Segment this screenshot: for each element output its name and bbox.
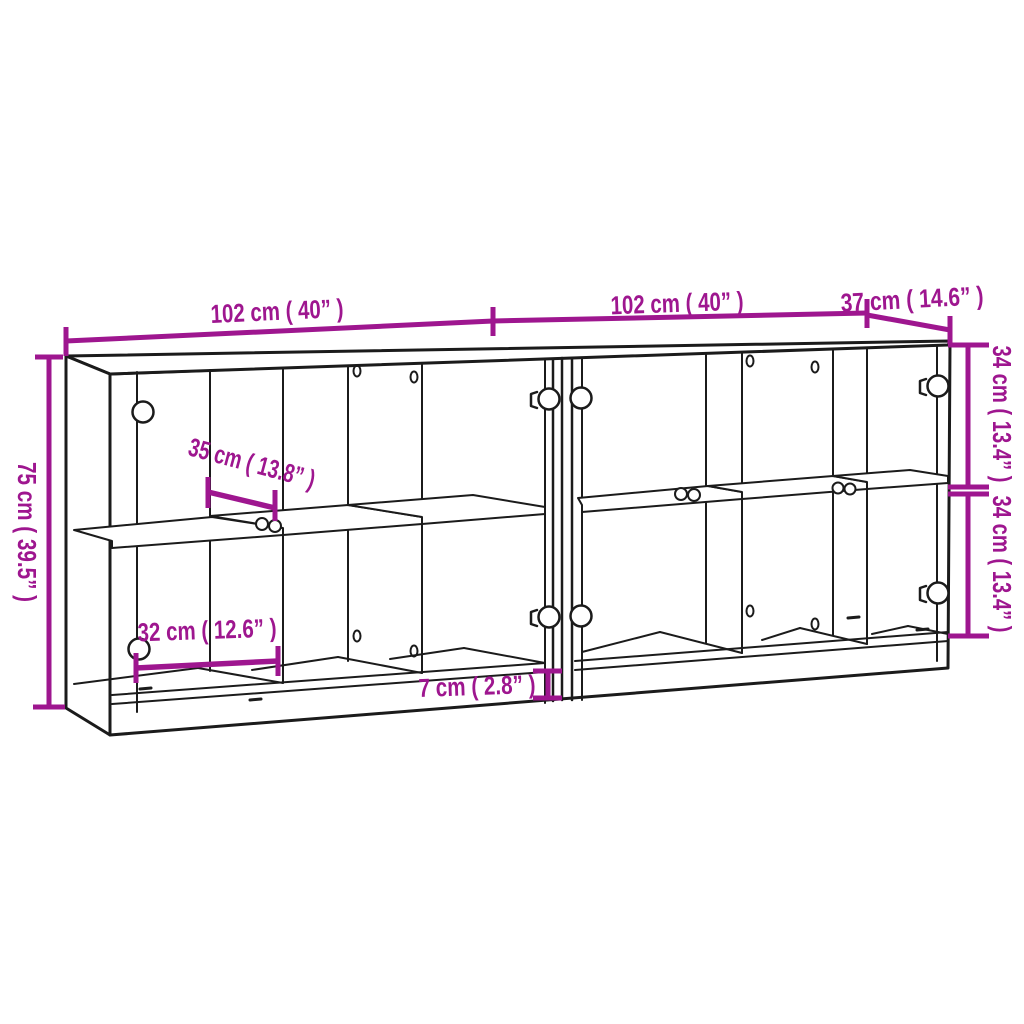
door-knob (539, 389, 560, 410)
door-knob (571, 388, 592, 409)
shelf-pin (833, 483, 844, 494)
dimension-diagram: 102 cm ( 40” ) 102 cm ( 40” ) 37 cm ( 14… (0, 0, 1024, 1024)
shelf-pin (675, 488, 687, 500)
door-knob (571, 606, 592, 627)
door-knob (928, 376, 949, 397)
shelf-pin (269, 520, 281, 532)
label-upper-compartment: 34 cm ( 13.4” ) (987, 346, 1017, 483)
label-width-left: 102 cm ( 40” ) (210, 293, 344, 329)
door-knob (539, 607, 560, 628)
label-height: 75 cm ( 39.5” ) (12, 462, 42, 602)
bookcase-drawing: 102 cm ( 40” ) 102 cm ( 40” ) 37 cm ( 14… (0, 0, 1024, 1024)
shelf-pin (845, 484, 856, 495)
knob-bracket (920, 586, 926, 602)
dim-lower-compartment (948, 494, 989, 636)
label-plinth-height: 7 cm ( 2.8” ) (418, 669, 536, 703)
dim-depth (867, 315, 950, 344)
cam-mark (250, 699, 261, 700)
cam-mark (917, 629, 928, 630)
shelf-pin (256, 518, 268, 530)
knob-bracket (920, 379, 926, 395)
label-compartment-width: 32 cm ( 12.6” ) (137, 613, 277, 648)
cam-mark (140, 688, 151, 689)
cabinet-left-side-panel (66, 356, 110, 735)
knob-bracket (531, 392, 537, 408)
cam-mark (848, 617, 859, 618)
label-width-right: 102 cm ( 40” ) (610, 286, 744, 321)
door-knob (928, 583, 949, 604)
label-lower-compartment: 34 cm ( 13.4” ) (987, 496, 1017, 633)
label-depth: 37 cm ( 14.6” ) (840, 280, 984, 317)
shelf-pin (688, 489, 700, 501)
dim-upper-compartment (948, 345, 989, 487)
knob-bracket (531, 610, 537, 626)
door-knob (133, 402, 154, 423)
